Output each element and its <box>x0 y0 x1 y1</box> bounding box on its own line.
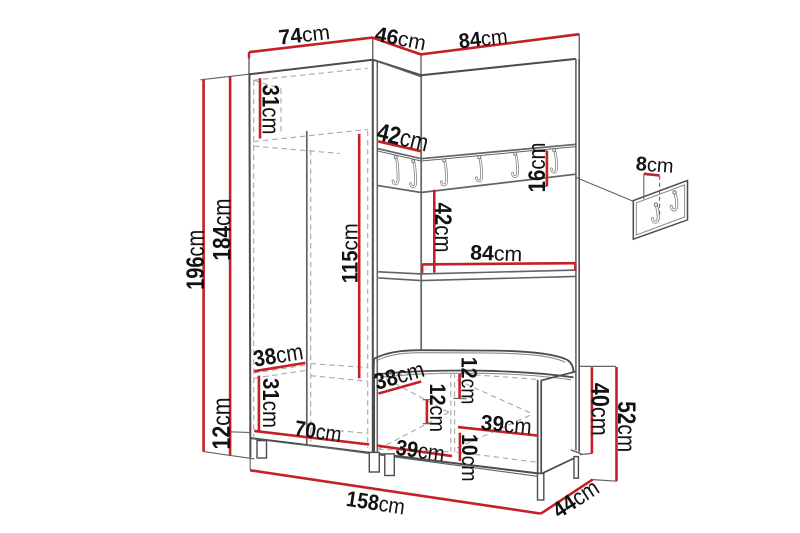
svg-text:12cm: 12cm <box>457 357 482 405</box>
svg-text:52cm: 52cm <box>612 401 640 452</box>
svg-text:8cm: 8cm <box>635 153 674 178</box>
svg-text:184cm: 184cm <box>208 199 236 261</box>
svg-text:31cm: 31cm <box>258 378 284 428</box>
svg-text:42cm: 42cm <box>429 203 456 253</box>
svg-text:39cm: 39cm <box>480 410 533 439</box>
svg-text:31cm: 31cm <box>257 85 284 135</box>
svg-text:12cm: 12cm <box>208 398 236 450</box>
svg-text:84cm: 84cm <box>470 242 523 267</box>
svg-text:12cm: 12cm <box>425 384 450 433</box>
svg-text:10cm: 10cm <box>457 434 482 482</box>
svg-text:40cm: 40cm <box>586 383 614 436</box>
svg-text:115cm: 115cm <box>338 223 363 283</box>
svg-text:16cm: 16cm <box>524 142 551 192</box>
svg-text:196cm: 196cm <box>182 230 210 290</box>
